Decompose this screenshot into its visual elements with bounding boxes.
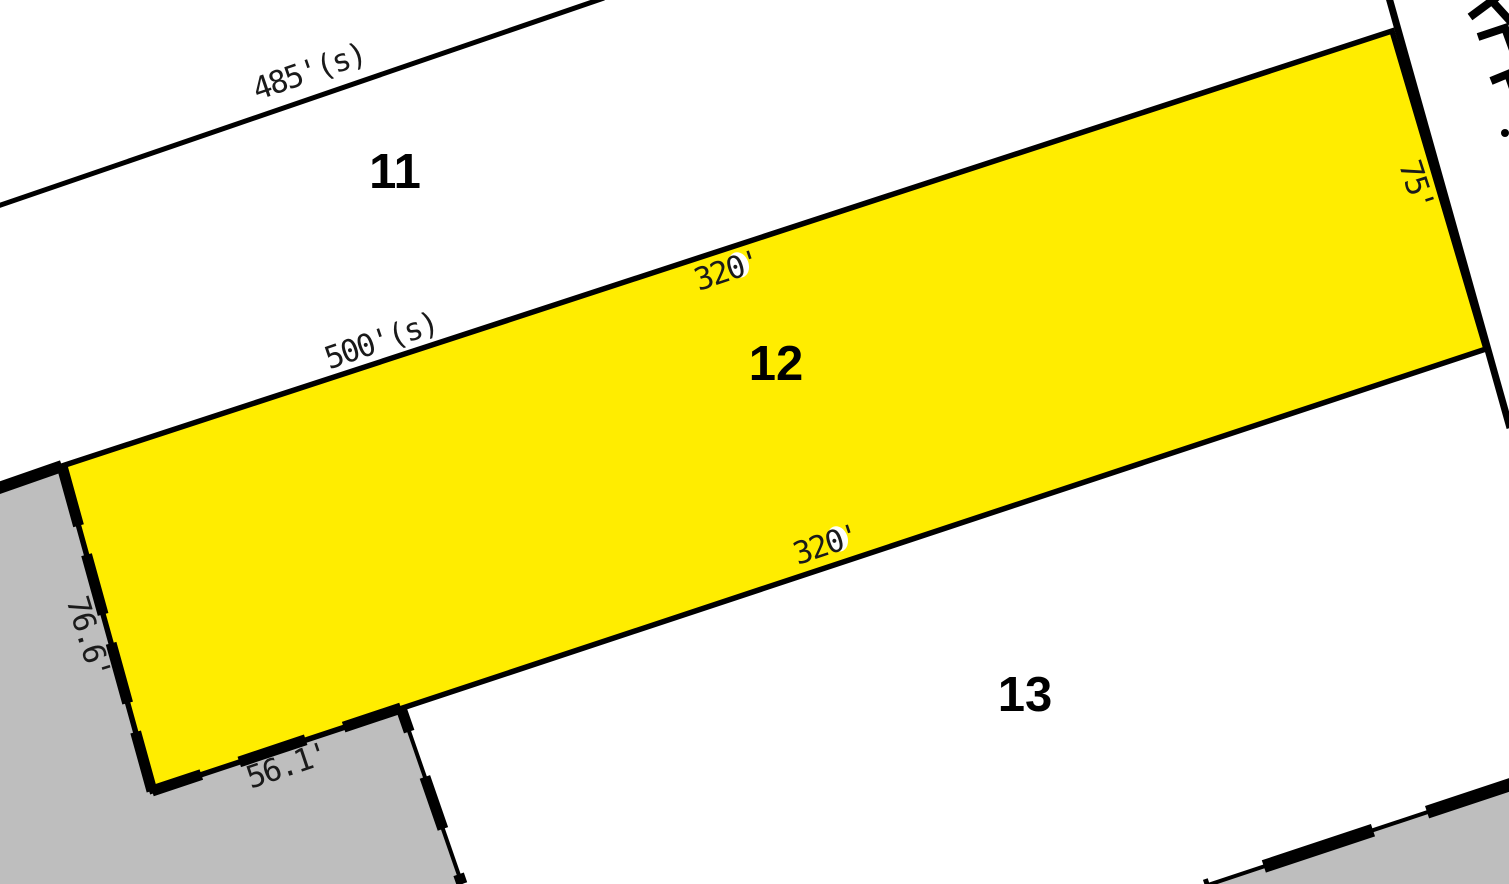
lot-13-label: 13 xyxy=(998,668,1053,722)
lot-11-label: 11 xyxy=(369,145,421,199)
label-dot xyxy=(1501,129,1509,137)
map-viewport: 485'(s) 500'(s) 320' 320' 75' 76.6' 56.1… xyxy=(0,0,1509,884)
parcel-map-canvas[interactable]: 485'(s) 500'(s) 320' 320' 75' 76.6' 56.1… xyxy=(0,0,1509,884)
lot-12-label: 12 xyxy=(749,337,804,391)
